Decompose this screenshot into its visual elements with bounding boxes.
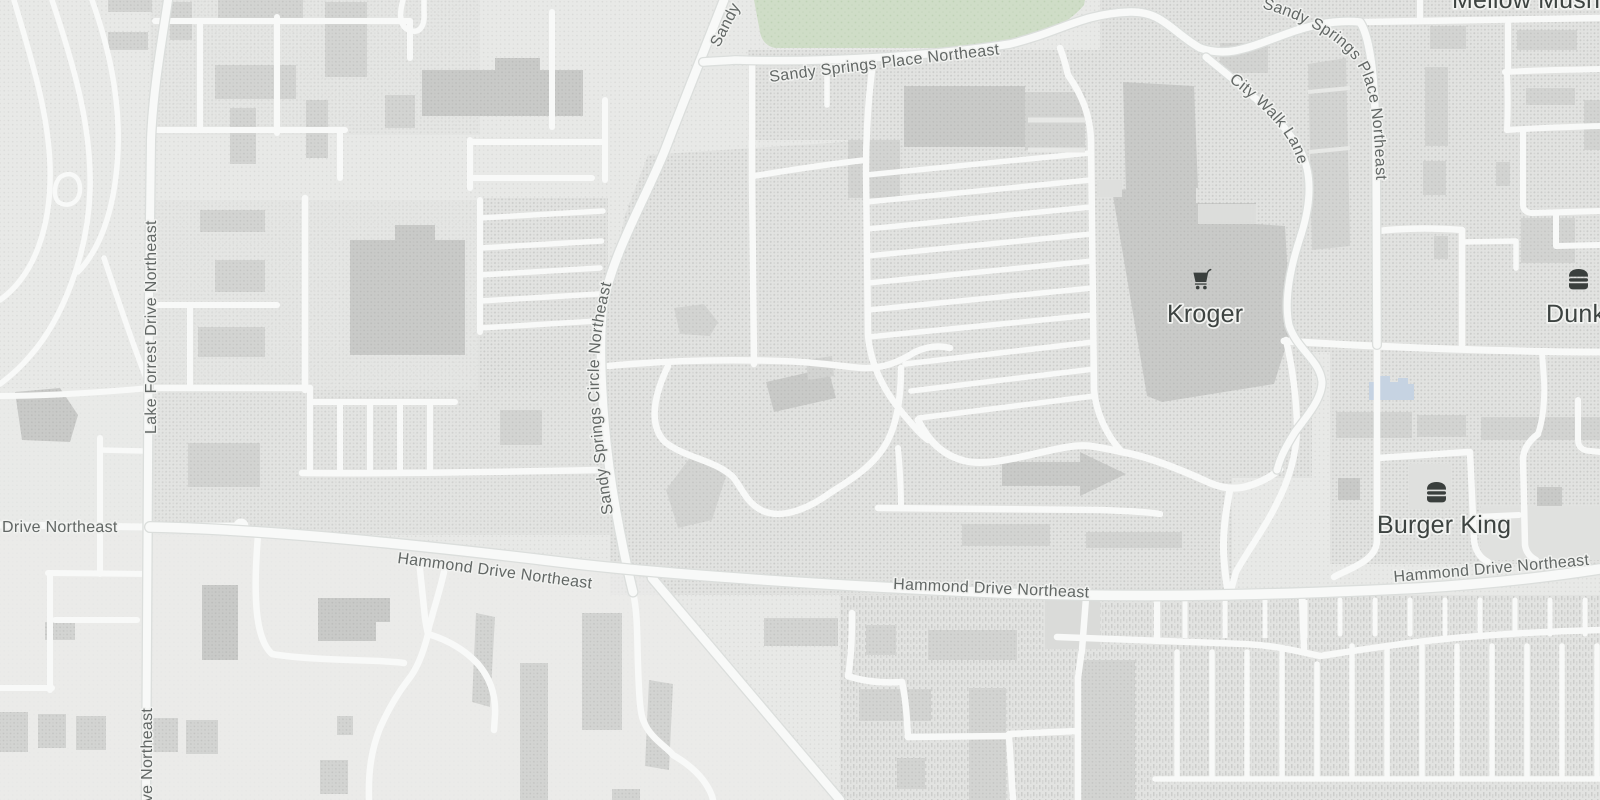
svg-text:Drive Northeast: Drive Northeast bbox=[2, 519, 118, 536]
svg-text:Kroger: Kroger bbox=[1167, 300, 1243, 328]
svg-text:ive Northeast: ive Northeast bbox=[139, 708, 156, 800]
svg-text:Dunkin': Dunkin' bbox=[1546, 300, 1600, 328]
svg-text:Mellow Mushroom: Mellow Mushroom bbox=[1452, 0, 1600, 14]
svg-text:Lake Forrest Drive Northeast: Lake Forrest Drive Northeast bbox=[143, 220, 160, 434]
svg-text:Burger King: Burger King bbox=[1377, 511, 1511, 539]
